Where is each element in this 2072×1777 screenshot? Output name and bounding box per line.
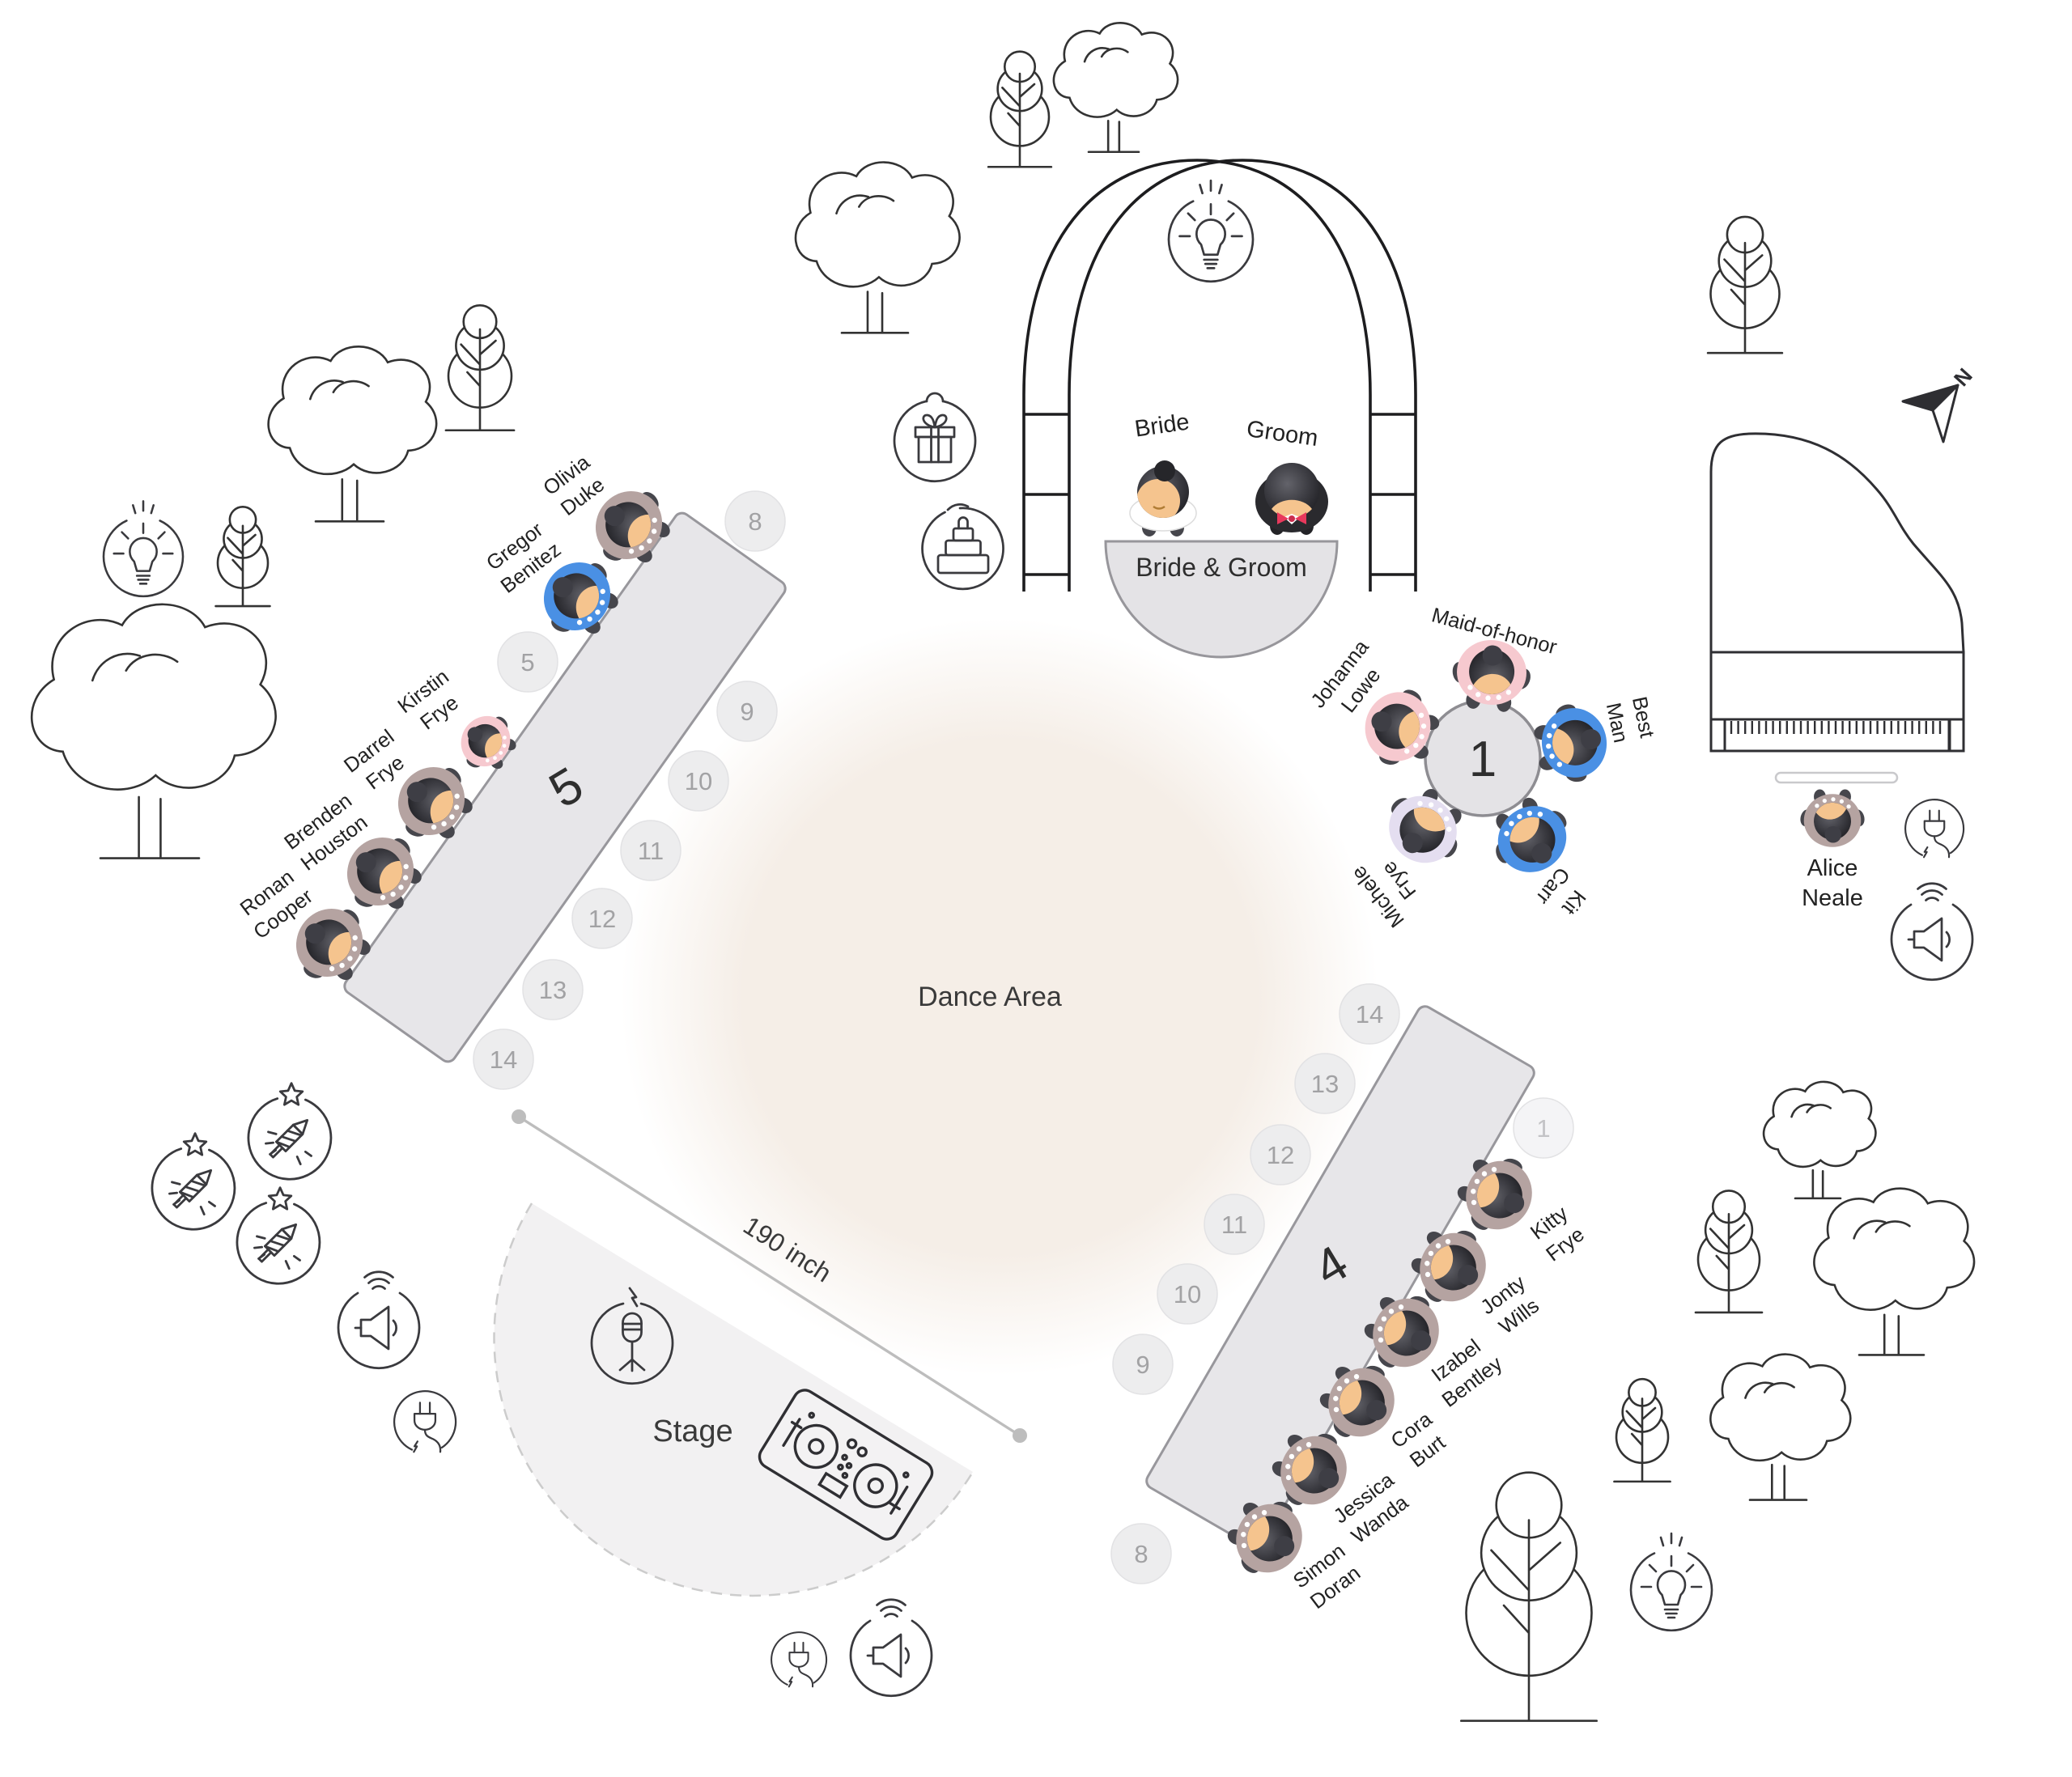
- svg-text:8: 8: [1134, 1540, 1148, 1568]
- svg-text:12: 12: [1267, 1141, 1294, 1169]
- svg-text:13: 13: [539, 976, 567, 1004]
- svg-text:1: 1: [1469, 732, 1497, 787]
- svg-text:Neale: Neale: [1802, 885, 1863, 911]
- svg-text:Bride & Groom: Bride & Groom: [1136, 553, 1307, 582]
- svg-text:13: 13: [1311, 1070, 1339, 1098]
- svg-text:8: 8: [748, 507, 762, 536]
- svg-text:11: 11: [1221, 1211, 1247, 1239]
- svg-text:5: 5: [520, 648, 534, 676]
- svg-text:11: 11: [638, 837, 664, 865]
- svg-text:10: 10: [1174, 1280, 1201, 1308]
- svg-text:9: 9: [1136, 1351, 1149, 1379]
- svg-text:1: 1: [1536, 1114, 1550, 1143]
- svg-text:Dance Area: Dance Area: [918, 982, 1062, 1012]
- svg-text:14: 14: [1356, 1000, 1383, 1028]
- svg-text:Alice: Alice: [1807, 855, 1858, 881]
- svg-text:9: 9: [740, 698, 754, 726]
- svg-text:14: 14: [490, 1045, 517, 1074]
- svg-text:10: 10: [685, 767, 712, 795]
- svg-text:12: 12: [588, 905, 616, 933]
- svg-text:Stage: Stage: [652, 1414, 732, 1448]
